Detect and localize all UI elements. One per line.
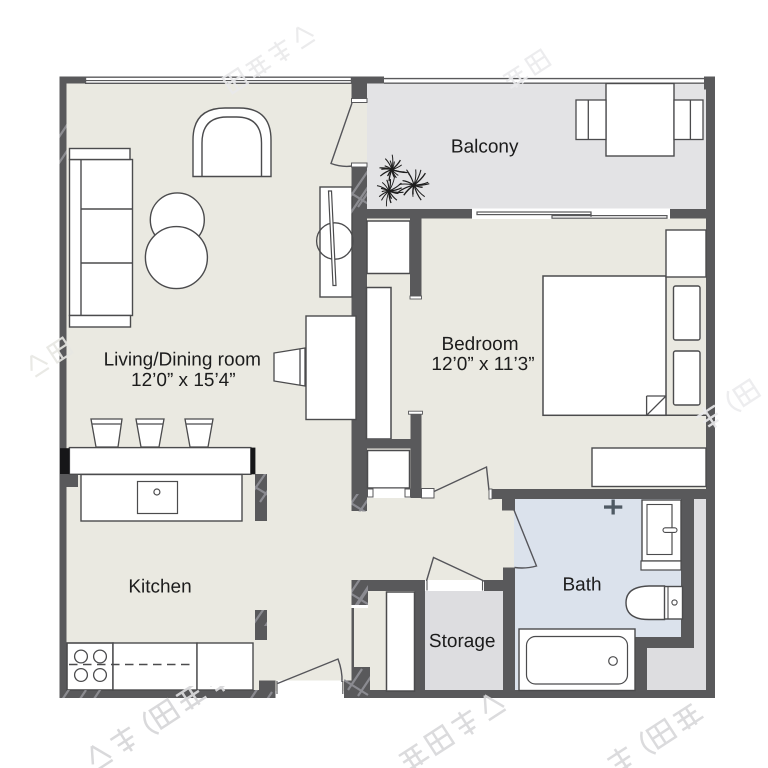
svg-text:Bath: Bath <box>562 575 601 596</box>
svg-text:Kitchen: Kitchen <box>128 577 191 598</box>
svg-text:Balcony: Balcony <box>451 137 519 158</box>
svg-text:Storage: Storage <box>429 631 496 652</box>
svg-text:Living/Dining room: Living/Dining room <box>104 350 261 371</box>
svg-text:12’0” x 15’4”: 12’0” x 15’4” <box>131 370 236 391</box>
svg-text:Bedroom: Bedroom <box>441 334 518 355</box>
svg-text:12’0” x 11’3”: 12’0” x 11’3” <box>431 354 534 375</box>
